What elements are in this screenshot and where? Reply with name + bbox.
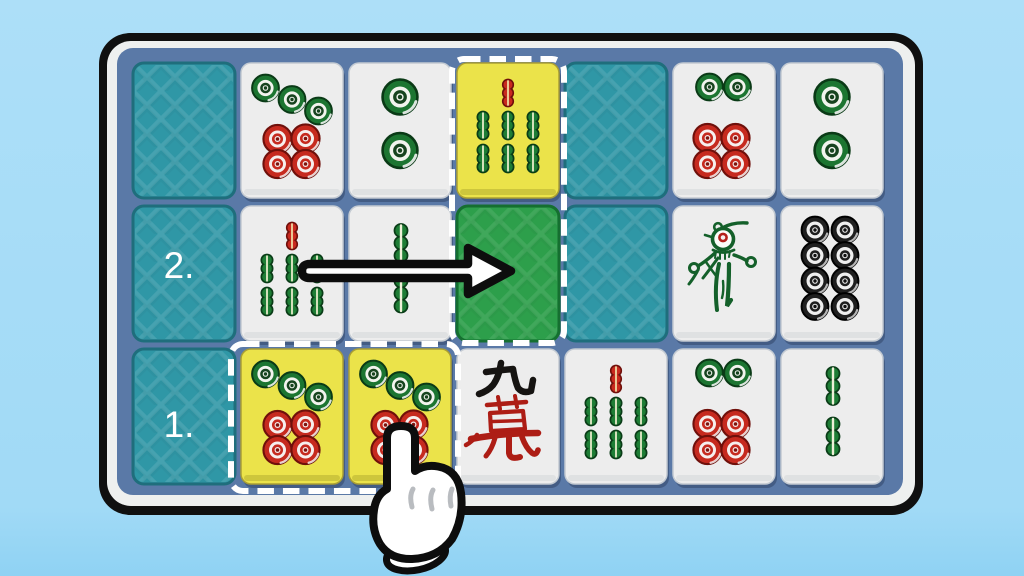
svg-text:1.: 1. xyxy=(164,404,195,445)
svg-text:2.: 2. xyxy=(164,245,195,286)
